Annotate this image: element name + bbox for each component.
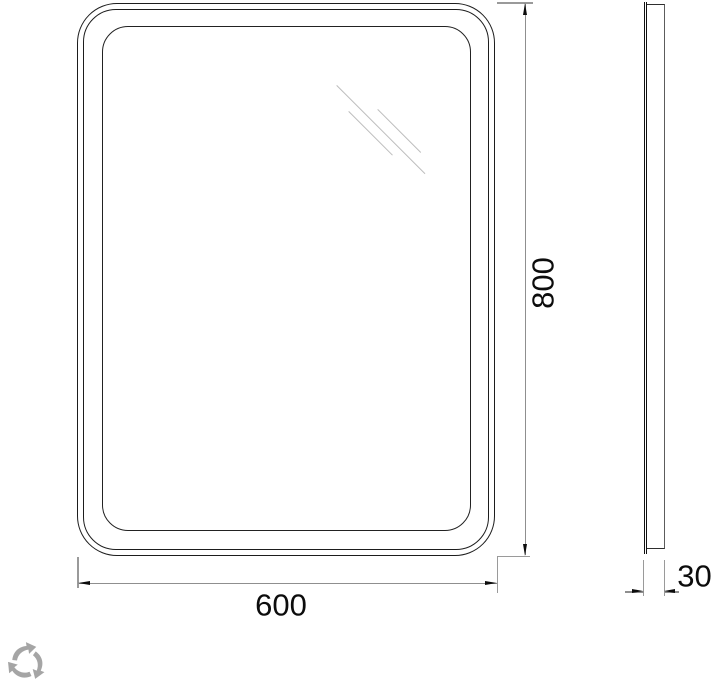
recycle-arrows-logo-icon [3,639,50,684]
arrowhead-left-icon [664,589,675,593]
extension-line-left [643,560,644,596]
arrowhead-down-icon [523,544,527,556]
arrowhead-right-icon [485,581,497,585]
extension-line-bottom [497,556,530,557]
width-dimension-label: 600 [255,589,307,620]
dimension-line-horizontal [79,583,497,584]
arrowhead-left-icon [78,581,90,585]
extension-line-top [497,2,533,3]
depth-dimension-label: 30 [677,561,711,592]
arrowhead-up-icon [523,3,527,15]
arrowhead-right-icon [632,589,643,593]
height-dimension-label: 800 [527,257,558,309]
side-view-body [647,4,665,550]
extension-line-right [497,557,498,593]
mirror-inner-frame-line [102,26,471,531]
technical-drawing-canvas: 800 600 30 [0,0,715,684]
